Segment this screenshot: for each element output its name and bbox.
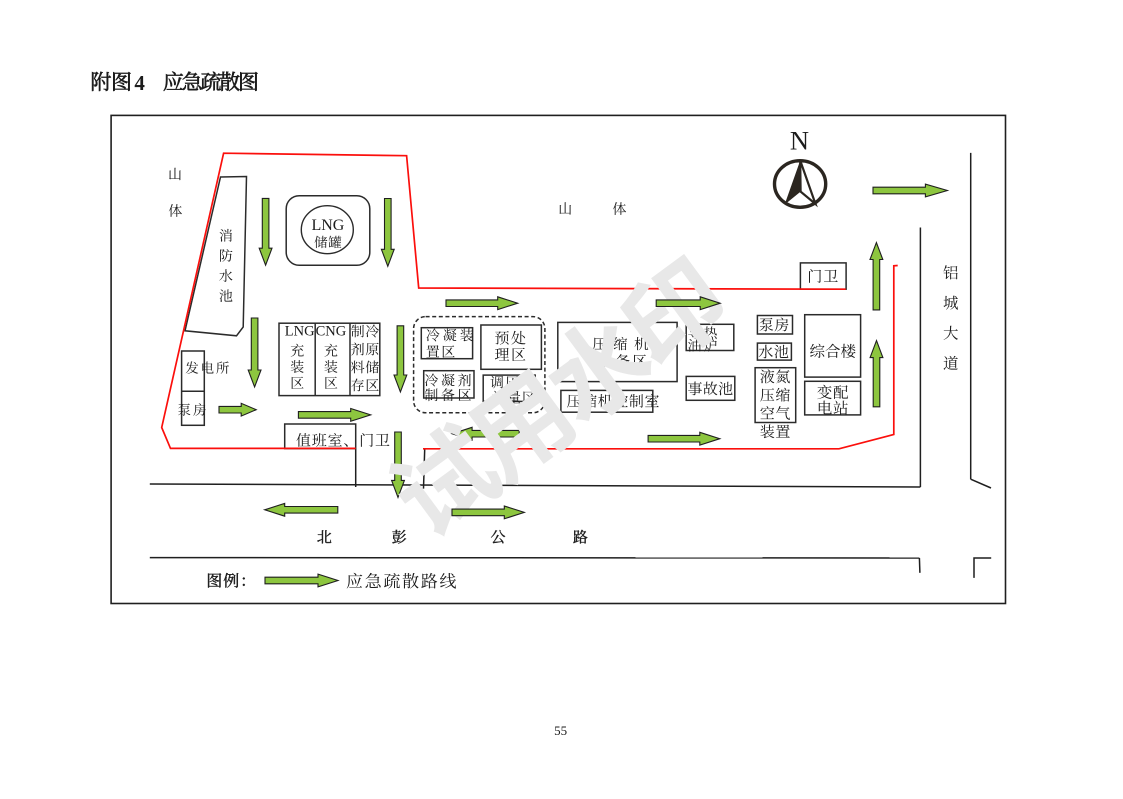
svg-text:LNG: LNG xyxy=(285,323,315,339)
svg-text:CNG: CNG xyxy=(316,323,347,339)
svg-text:LNG: LNG xyxy=(311,217,344,234)
svg-text:55: 55 xyxy=(554,723,567,738)
svg-text:N: N xyxy=(790,125,809,155)
svg-text:4: 4 xyxy=(134,71,145,95)
